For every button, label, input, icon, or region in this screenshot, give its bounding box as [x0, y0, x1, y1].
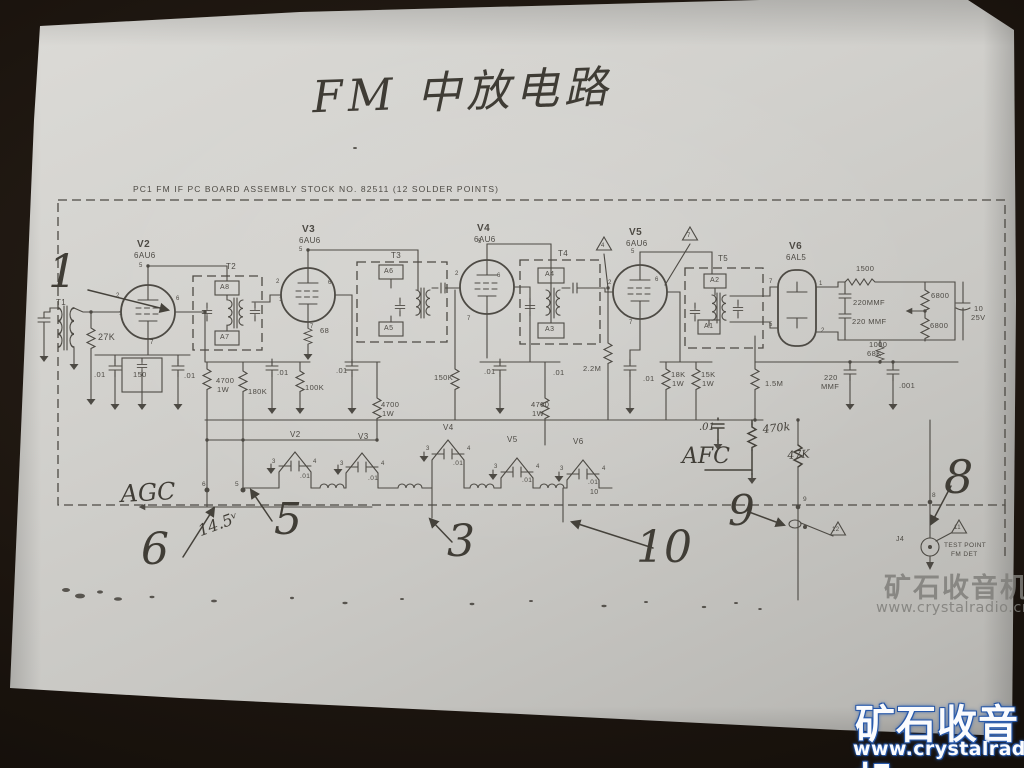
photo-background: PC1 FM IF PC BOARD ASSEMBLY STOCK NO. 82… — [0, 0, 1024, 768]
paper-watermark-url: www.crystalradio.cn — [876, 600, 1024, 616]
paper-speckles — [62, 147, 762, 610]
corner-watermark-url: www.crystalradio.cn — [853, 738, 1024, 760]
trimmer-boxes — [215, 265, 726, 345]
wires — [38, 227, 970, 600]
pcb-dashed-border — [58, 200, 1005, 560]
handwritten-title: FM 中放电路 — [311, 51, 614, 125]
board-assembly-header: PC1 FM IF PC BOARD ASSEMBLY STOCK NO. 82… — [133, 184, 499, 194]
